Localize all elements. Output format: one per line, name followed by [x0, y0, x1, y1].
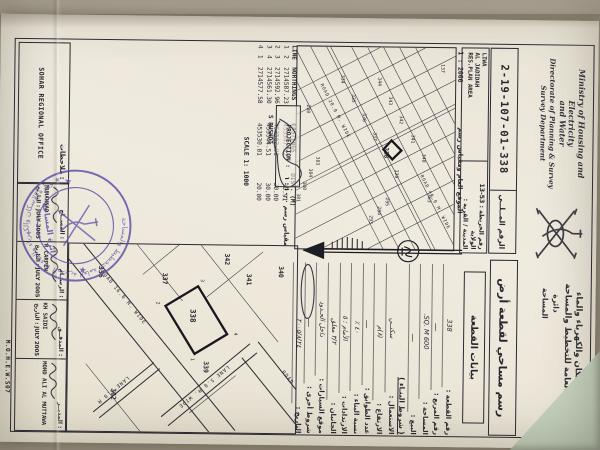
plot-number: 342 — [223, 253, 231, 265]
col-line: LINE — [289, 45, 298, 67]
paper-fold-crease — [52, 0, 61, 450]
plan-area-name: LIWA AL JADIDAH RES.PLAN AREA — [461, 48, 488, 160]
plot-fields: رقم القطعة :338رقم المربع :ــــالمساحة :… — [295, 257, 455, 435]
plot-number: 335 — [350, 94, 356, 103]
form-code: M.O.H.E.W.S07 — [3, 340, 11, 394]
plot-number: 337 — [161, 273, 169, 285]
plot-field-row: موقع السيارات :داخل الحـدود — [314, 260, 328, 434]
location-plan-box: ROAD 20.0 M. WIDE ROAD 46.0 M. WIDE 1373… — [294, 45, 456, 251]
drawing-scale-text: SCALE 1: 1000 — [242, 137, 250, 186]
regional-office-text: SOHAR REGIONAL OFFICE — [36, 47, 46, 179]
plot-number: 341 — [245, 274, 253, 286]
plot-number: 344 — [376, 77, 382, 86]
ministry-arabic-line: دائرة المساحة — [539, 278, 562, 328]
plot-number: 339 — [393, 169, 399, 178]
location-plots: 1373633443433423413403343353363373383392… — [295, 62, 445, 225]
panel-title-box: رسم مساحي لقطعة أرض — [488, 260, 518, 436]
main-plan-scale-arabic: مقياس رسم ١٠٠٠ : ١ — [282, 165, 291, 257]
road-label: ROAD 20.0 M. WIDE — [318, 83, 351, 140]
plot-field-row: الجانبان :٣/٢ معلق — [326, 260, 340, 434]
file-number-box: الرقم المــلــي 2-19-107-01-338 — [488, 48, 519, 254]
plot-number: 338 — [382, 147, 389, 158]
ministry-script-line: Ministry of Housing and Electricity — [566, 49, 587, 199]
pen-oval-mark — [299, 261, 316, 321]
plot-field-row: المساحة :600 SQ. M. — [418, 261, 432, 435]
plot-field-row: الارتدادات :الأمام : ٥ — [338, 260, 352, 434]
surveyor-annotation: S RUSHDI — [266, 115, 273, 144]
plot-number: 2 — [155, 302, 161, 305]
file-number-label: الرقم المــلــي — [489, 190, 516, 253]
plot-number: 301 — [295, 193, 301, 202]
plot-number: 339 — [202, 361, 210, 373]
area-name-line: RES.PLAN AREA — [464, 52, 472, 156]
plot-field-row: عدد الطوابق :ــــ — [361, 260, 375, 434]
panel-subtitle-box: بيانات القطعة — [462, 271, 486, 423]
ministry-script-line: and Water — [556, 49, 567, 199]
area-name-line: AL JADIDAH — [471, 52, 479, 156]
map-number-line: رقم الخريطة : 53-13 الولاية — [468, 163, 485, 249]
plot-field-row: رقم المربع :ــــ — [430, 261, 444, 435]
plot-field-row: الارتفاع :(٨)م — [372, 260, 386, 434]
location-plan-scale: 1 : 2000 — [456, 51, 464, 82]
official-round-stamp: وزارة الإسكان والكهرباء والماء ★ المديري… — [3, 153, 148, 298]
ministry-name-english: Ministry of Housing and Electricity and … — [537, 48, 586, 199]
stamp-star: ★ — [62, 177, 73, 187]
plot-number: 340 — [420, 154, 426, 163]
plot-number: 338 — [188, 309, 197, 323]
plot-number: 1 — [189, 358, 195, 361]
area-name-line: LIWA — [478, 53, 486, 157]
plot-number: 343 — [387, 96, 393, 105]
plot-number: 340 — [277, 266, 285, 278]
plot-field-row: رقم القطعة :338 — [441, 261, 455, 435]
stamp-star: ★ — [76, 265, 87, 275]
plot-field-row: نسبة البناء :٤٠ ٪ — [349, 260, 363, 434]
road-label: ROAD 46.0 M. WIDE — [418, 174, 451, 231]
krooki-document-sheet: Ministry of Housing and Electricity and … — [0, 14, 599, 449]
plot-number: 336 — [361, 113, 367, 122]
plot-field-row: الاستعمال :سكنــي — [384, 260, 398, 434]
plot-number: 342 — [398, 116, 404, 125]
plot-field-row: البيع :ــــ — [407, 261, 421, 435]
plot-number: 293 — [368, 215, 374, 224]
plot-number: 137 — [439, 64, 445, 73]
plot-number: 303 — [314, 157, 320, 166]
paper-top-edge-shadow — [0, 14, 600, 28]
file-number-value: 2-19-107-01-338 — [490, 49, 518, 190]
photo-of-survey-document: Ministry of Housing and Electricity and … — [0, 0, 600, 450]
plot-number: 4 — [232, 333, 238, 336]
plot-number: 302 — [109, 388, 117, 400]
oman-national-emblem-icon — [530, 202, 589, 265]
directorate-line: Directorate of Planning & Survey — [547, 48, 558, 198]
location-plan-caption: الموقع العام ومقياس رسم — [455, 127, 464, 247]
plot-number: 334 — [339, 75, 345, 84]
location-plan-drawing: ROAD 20.0 M. WIDE ROAD 46.0 M. WIDE 1373… — [295, 46, 455, 250]
plot-number: 3 — [199, 279, 205, 282]
